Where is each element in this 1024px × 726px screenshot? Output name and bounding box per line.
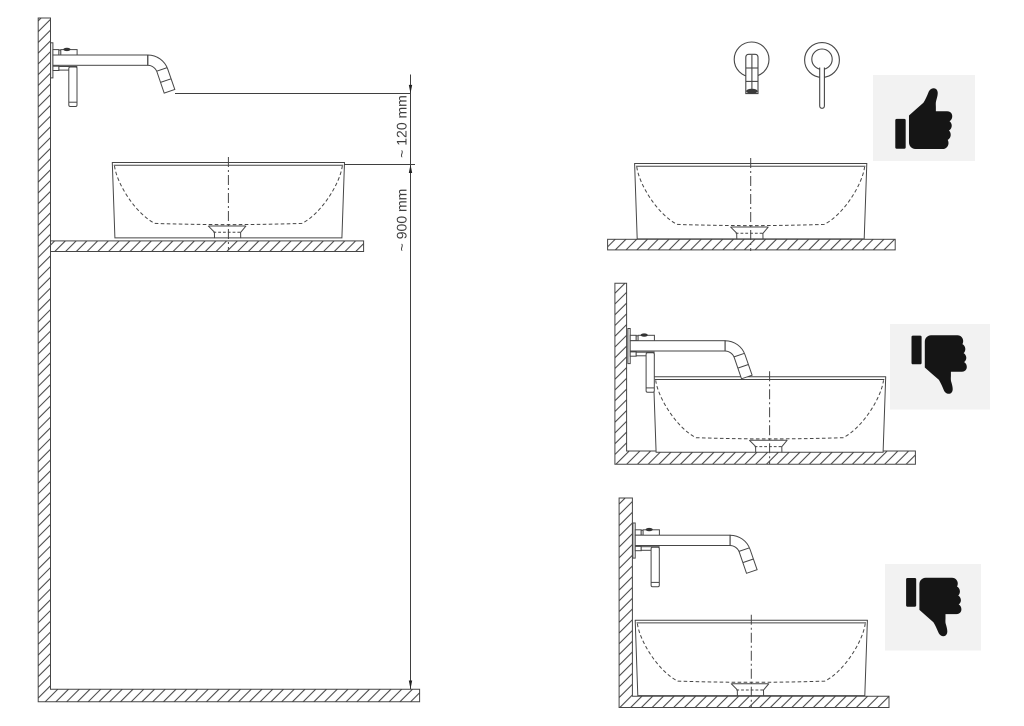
svg-text:~ 120 mm: ~ 120 mm (394, 95, 410, 158)
svg-text:~ 900 mm: ~ 900 mm (394, 189, 410, 252)
